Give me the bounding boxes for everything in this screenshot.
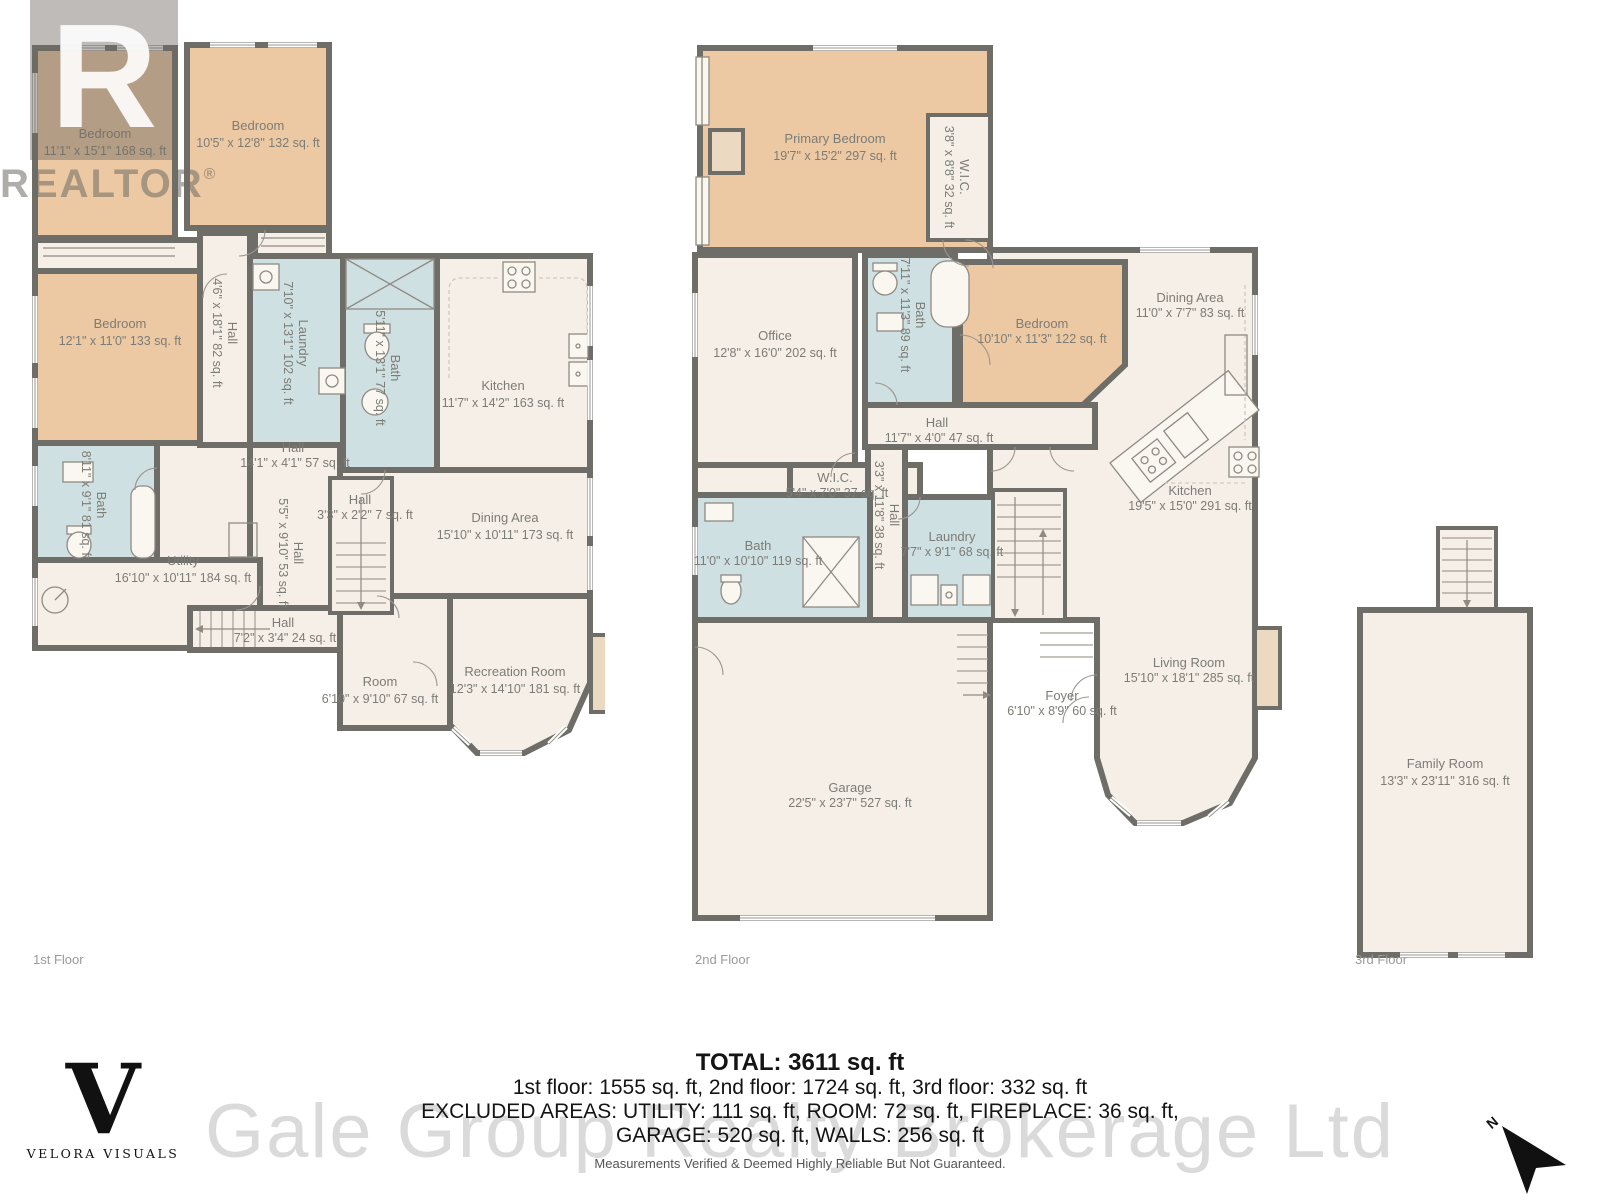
svg-text:Laundry: Laundry — [296, 320, 311, 367]
svg-text:15'10" x 10'11" 173 sq. ft: 15'10" x 10'11" 173 sq. ft — [437, 528, 574, 542]
realtor-r-icon: R — [30, 0, 178, 160]
svg-text:6'10" x 8'9" 60 sq. ft: 6'10" x 8'9" 60 sq. ft — [1007, 704, 1117, 718]
svg-text:Room: Room — [363, 674, 398, 689]
svg-text:Bath: Bath — [388, 355, 403, 382]
area-summary: TOTAL: 3611 sq. ft 1st floor: 1555 sq. f… — [0, 1050, 1600, 1171]
svg-text:Hall: Hall — [349, 492, 372, 507]
svg-text:Hall: Hall — [225, 322, 240, 345]
svg-text:8'11" x 9'1" 81 sq. ft: 8'11" x 9'1" 81 sq. ft — [79, 451, 93, 560]
excluded-areas-2: GARAGE: 520 sq. ft, WALLS: 256 sq. ft — [0, 1124, 1600, 1148]
svg-text:Hall: Hall — [272, 615, 295, 630]
svg-text:Recreation Room: Recreation Room — [464, 664, 565, 679]
svg-text:22'5" x 23'7" 527 sq. ft: 22'5" x 23'7" 527 sq. ft — [788, 796, 912, 810]
svg-text:19'5" x 15'0" 291 sq. ft: 19'5" x 15'0" 291 sq. ft — [1128, 499, 1252, 513]
svg-text:Bedroom: Bedroom — [1016, 316, 1069, 331]
third-floor-plan: Family Room 13'3" x 23'11" 316 sq. ft — [1350, 520, 1540, 965]
svg-text:11'7" x 4'0" 47 sq. ft: 11'7" x 4'0" 47 sq. ft — [885, 431, 994, 445]
svg-text:19'7" x 15'2" 297 sq. ft: 19'7" x 15'2" 297 sq. ft — [773, 149, 897, 163]
svg-text:Hall: Hall — [887, 504, 902, 527]
svg-text:Kitchen: Kitchen — [481, 378, 524, 393]
svg-text:Dining Area: Dining Area — [471, 510, 539, 525]
floor-label-3rd: 3rd Floor — [1355, 952, 1407, 967]
svg-text:W.I.C.: W.I.C. — [817, 470, 852, 485]
svg-text:Hall: Hall — [282, 440, 305, 455]
excluded-areas-1: EXCLUDED AREAS: UTILITY: 111 sq. ft, ROO… — [0, 1100, 1600, 1124]
svg-text:14'1" x 4'1" 57 sq. ft: 14'1" x 4'1" 57 sq. ft — [240, 456, 350, 470]
compass-n-label: N — [1483, 1113, 1501, 1132]
svg-text:10'10" x 11'3" 122 sq. ft: 10'10" x 11'3" 122 sq. ft — [977, 332, 1107, 346]
svg-text:5'5" x 9'10" 53 sq. ft: 5'5" x 9'10" 53 sq. ft — [276, 498, 290, 608]
bathtub-icon — [931, 261, 969, 327]
bathtub-icon — [131, 486, 155, 558]
shower-icon — [803, 537, 859, 607]
svg-text:Utility: Utility — [167, 553, 199, 568]
fireplace-icon — [710, 130, 743, 173]
svg-text:7'2" x 3'4" 24 sq. ft: 7'2" x 3'4" 24 sq. ft — [234, 631, 337, 645]
registered-mark-icon: ® — [204, 166, 218, 183]
svg-text:13'3" x 23'11" 316 sq. ft: 13'3" x 23'11" 316 sq. ft — [1380, 774, 1510, 788]
total-area: TOTAL: 3611 sq. ft — [0, 1050, 1600, 1076]
svg-text:12'3" x 14'10" 181 sq. ft: 12'3" x 14'10" 181 sq. ft — [450, 682, 581, 696]
realtor-logo: R REALTOR® — [0, 0, 195, 207]
svg-text:7'7" x 9'1" 68 sq. ft: 7'7" x 9'1" 68 sq. ft — [901, 545, 1004, 559]
svg-text:Hall: Hall — [926, 415, 949, 430]
svg-text:Bedroom: Bedroom — [94, 316, 147, 331]
room-bedroom-3 — [35, 271, 200, 443]
disclaimer: Measurements Verified & Deemed Highly Re… — [0, 1156, 1600, 1171]
svg-text:11'0" x 10'10" 119 sq. ft: 11'0" x 10'10" 119 sq. ft — [694, 554, 823, 568]
room-office — [695, 255, 855, 465]
velora-visuals-logo: V VELORA VISUALS — [18, 1056, 188, 1161]
svg-text:Hall: Hall — [291, 542, 306, 565]
svg-text:Kitchen: Kitchen — [1168, 483, 1211, 498]
svg-text:Family Room: Family Room — [1407, 756, 1484, 771]
svg-text:3'3" x 11'8" 38 sq. ft: 3'3" x 11'8" 38 sq. ft — [872, 461, 886, 570]
realtor-wordmark-text: REALTOR — [0, 162, 204, 206]
svg-text:4'6" x 18'1" 82 sq. ft: 4'6" x 18'1" 82 sq. ft — [210, 278, 224, 388]
svg-text:W.I.C.: W.I.C. — [957, 159, 972, 194]
svg-text:11'0" x 7'7" 83 sq. ft: 11'0" x 7'7" 83 sq. ft — [1136, 306, 1245, 320]
toilet-icon — [873, 263, 897, 271]
fireplace-icon — [1255, 628, 1280, 708]
svg-text:Bath: Bath — [745, 538, 772, 553]
realtor-r-glyph: R — [51, 3, 158, 151]
room-hall-column — [200, 233, 250, 445]
svg-text:6'10" x 9'10" 67 sq. ft: 6'10" x 9'10" 67 sq. ft — [322, 692, 439, 706]
fireplace-icon — [591, 635, 605, 712]
velora-name: VELORA VISUALS — [18, 1146, 188, 1161]
svg-text:12'1" x 11'0" 133 sq. ft: 12'1" x 11'0" 133 sq. ft — [59, 334, 182, 348]
svg-text:10'5" x 12'8" 132 sq. ft: 10'5" x 12'8" 132 sq. ft — [196, 136, 320, 150]
svg-text:Foyer: Foyer — [1045, 688, 1079, 703]
svg-text:Bath: Bath — [913, 302, 928, 329]
stove-icon — [503, 262, 535, 292]
floor-label-2nd: 2nd Floor — [695, 952, 750, 967]
svg-text:7'10" x 13'1" 102 sq. ft: 7'10" x 13'1" 102 sq. ft — [281, 281, 295, 405]
second-floor-plan: Primary Bedroom 19'7" x 15'2" 297 sq. ft… — [685, 35, 1305, 925]
svg-text:Dining Area: Dining Area — [1156, 290, 1224, 305]
floor-areas: 1st floor: 1555 sq. ft, 2nd floor: 1724 … — [0, 1076, 1600, 1100]
svg-text:Laundry: Laundry — [929, 529, 976, 544]
svg-text:7'11" x 11'3" 89 sq. ft: 7'11" x 11'3" 89 sq. ft — [898, 258, 912, 373]
room-garage — [695, 620, 990, 918]
svg-text:Bedroom: Bedroom — [232, 118, 285, 133]
stairs-icon — [1040, 633, 1093, 657]
floorplan-sheet: Bedroom 11'1" x 15'1" 168 sq. ft Bedroom… — [0, 0, 1600, 1200]
realtor-wordmark: REALTOR® — [0, 162, 195, 207]
svg-text:Office: Office — [758, 328, 792, 343]
svg-text:3'8" x 8'8" 32 sq. ft: 3'8" x 8'8" 32 sq. ft — [942, 126, 956, 229]
svg-text:16'10" x 10'11" 184 sq. ft: 16'10" x 10'11" 184 sq. ft — [115, 571, 252, 585]
svg-text:5'11" x 13'1" 77 sq. ft: 5'11" x 13'1" 77 sq. ft — [373, 310, 387, 426]
svg-text:Garage: Garage — [828, 780, 871, 795]
svg-text:15'10" x 18'1" 285 sq. ft: 15'10" x 18'1" 285 sq. ft — [1124, 671, 1255, 685]
svg-text:11'7" x 14'2" 163 sq. ft: 11'7" x 14'2" 163 sq. ft — [442, 396, 565, 410]
stove-icon — [1229, 447, 1259, 477]
velora-v-icon: V — [18, 1056, 188, 1144]
svg-text:Living Room: Living Room — [1153, 655, 1225, 670]
svg-text:3'3" x 2'2" 7 sq. ft: 3'3" x 2'2" 7 sq. ft — [317, 508, 413, 522]
north-compass-icon: N — [1480, 1108, 1580, 1198]
sink-icon — [705, 503, 733, 521]
svg-text:Primary Bedroom: Primary Bedroom — [784, 131, 885, 146]
svg-text:12'8" x 16'0" 202 sq. ft: 12'8" x 16'0" 202 sq. ft — [713, 346, 837, 360]
svg-text:Bath: Bath — [94, 492, 109, 519]
room-small-room — [340, 596, 450, 728]
floor-label-1st: 1st Floor — [33, 952, 84, 967]
stairs-icon — [993, 490, 1065, 620]
